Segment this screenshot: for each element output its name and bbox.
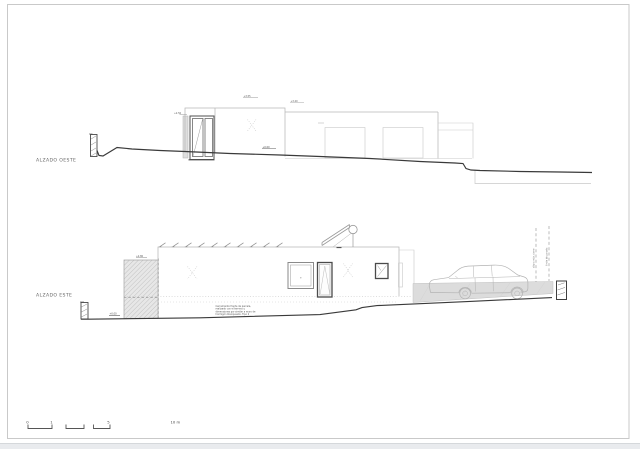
stone-wall-hatched <box>124 259 158 319</box>
driveway-slab <box>413 282 553 303</box>
window-tall <box>318 263 333 298</box>
scale-bracket <box>66 425 84 429</box>
level-marker: +0.00 <box>109 313 120 316</box>
scale-bracket <box>28 425 52 429</box>
opening-symbol-icon <box>248 120 257 132</box>
east-elevation: ALZADO ESTE <box>36 225 567 320</box>
svg-text:+3.55: +3.55 <box>244 95 252 98</box>
west-window-opening <box>325 128 365 159</box>
scale-tick-5: 5 <box>107 419 110 424</box>
roof-slat-marks <box>159 243 283 247</box>
svg-text:+3.20: +3.20 <box>291 100 299 103</box>
boundary-label: altura máx. cierre <box>533 248 536 268</box>
east-right-wing <box>399 250 414 284</box>
level-marker: +3.55 <box>243 95 258 98</box>
gate-post-east <box>80 302 88 319</box>
drawing-sheet: ALZADO OESTE <box>0 0 640 449</box>
level-marker: +2.80 <box>136 255 147 258</box>
level-marker: +3.20 <box>290 100 304 103</box>
east-elevation-title: ALZADO ESTE <box>36 293 72 299</box>
level-marker: +0.00 <box>262 146 276 149</box>
west-facade-outline <box>185 108 438 159</box>
svg-text:+0.00: +0.00 <box>110 313 118 316</box>
scale-tick-10: 10 m <box>171 419 181 424</box>
solar-collector-icon <box>322 225 357 248</box>
entrance-door <box>189 116 215 160</box>
window-square <box>288 263 314 289</box>
page-edge-shadow <box>0 443 640 449</box>
west-right-block <box>285 123 473 159</box>
opening-symbol-icon <box>344 264 353 278</box>
terrain-line-west <box>97 148 592 173</box>
note-text: Cerramiento frente de parcela, realizado… <box>216 305 257 316</box>
boundary-label: límite de parcela <box>546 247 549 266</box>
scale-bar: 0 1 5 10 m <box>26 419 180 428</box>
svg-text:hormigón blanqueado. Tipo 2: hormigón blanqueado. Tipo 2 <box>216 313 250 316</box>
opening-symbol-icon <box>188 267 198 280</box>
svg-text:+0.00: +0.00 <box>263 146 271 149</box>
drawing-canvas: ALZADO OESTE <box>0 0 640 449</box>
boundary-dashed-lines: altura máx. cierre límite de parcela <box>533 226 550 282</box>
drawing-frame <box>8 5 630 439</box>
car-mirror <box>455 276 457 278</box>
window-small <box>376 264 389 279</box>
west-elevation-title: ALZADO OESTE <box>36 158 76 164</box>
west-elevation: ALZADO OESTE <box>36 95 592 184</box>
boundary-pillar <box>557 281 567 300</box>
scale-tick-0: 0 <box>26 419 29 424</box>
gate-post-west <box>89 134 97 157</box>
svg-text:+2.50: +2.50 <box>174 112 182 115</box>
glazing-line <box>378 266 387 277</box>
west-window-opening <box>383 128 423 159</box>
east-building <box>158 247 414 318</box>
scale-tick-1: 1 <box>50 419 53 424</box>
scale-bracket <box>94 425 111 429</box>
svg-text:+2.80: +2.80 <box>136 255 144 258</box>
